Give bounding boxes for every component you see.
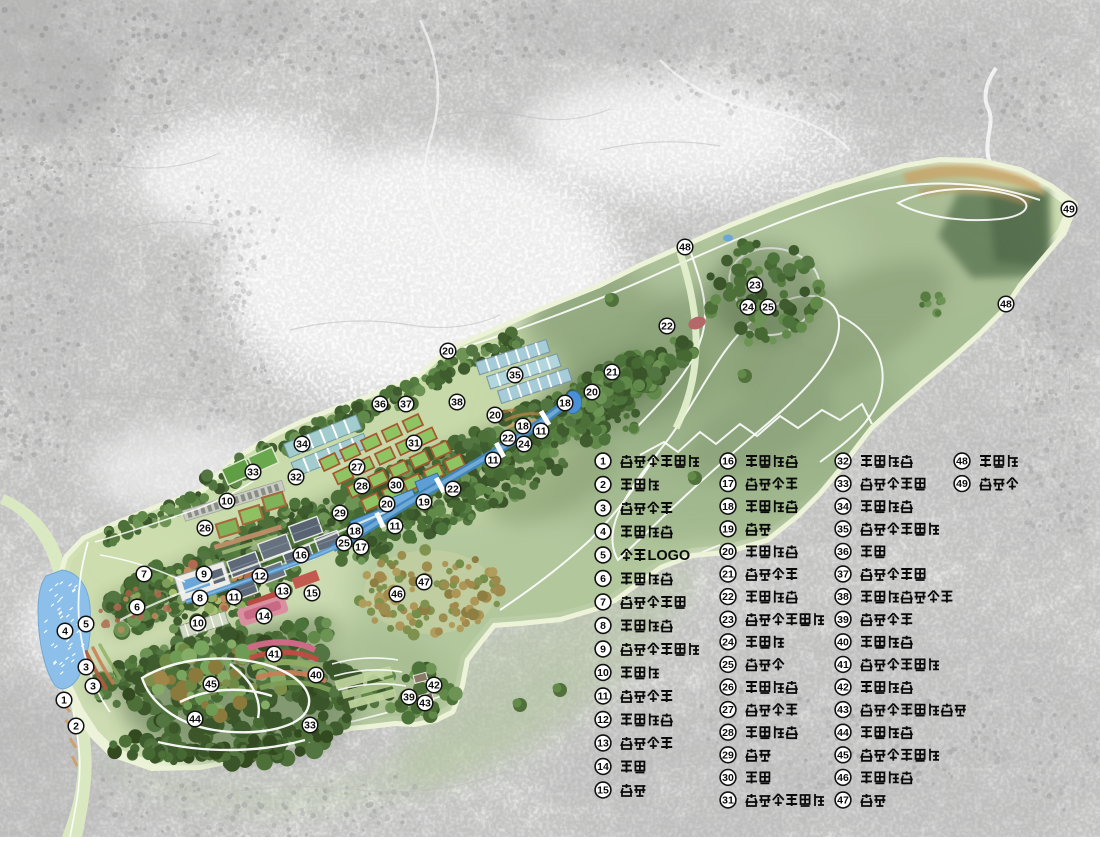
svg-text:34: 34: [296, 439, 308, 451]
svg-text:13: 13: [597, 738, 609, 750]
svg-text:22: 22: [502, 433, 514, 445]
svg-text:34: 34: [837, 501, 849, 513]
svg-text:2: 2: [600, 479, 606, 491]
svg-text:48: 48: [679, 242, 691, 254]
svg-text:32: 32: [837, 456, 849, 468]
svg-text:11: 11: [389, 521, 400, 533]
svg-text:8: 8: [600, 620, 606, 632]
svg-text:38: 38: [451, 397, 463, 409]
svg-text:19: 19: [722, 523, 734, 535]
svg-text:19: 19: [418, 497, 430, 509]
svg-text:15: 15: [597, 785, 609, 797]
svg-text:36: 36: [837, 546, 849, 558]
svg-text:11: 11: [487, 455, 498, 467]
svg-text:18: 18: [722, 501, 734, 513]
svg-text:1: 1: [61, 695, 67, 707]
svg-text:26: 26: [199, 523, 211, 535]
svg-text:40: 40: [837, 636, 849, 648]
svg-text:20: 20: [489, 410, 501, 422]
svg-text:48: 48: [956, 456, 968, 468]
svg-text:30: 30: [722, 772, 734, 784]
svg-text:42: 42: [428, 680, 440, 692]
svg-text:23: 23: [722, 614, 734, 626]
svg-text:49: 49: [956, 478, 968, 490]
svg-text:9: 9: [600, 644, 606, 656]
svg-text:12: 12: [597, 714, 609, 726]
svg-text:20: 20: [722, 546, 734, 558]
svg-text:42: 42: [837, 682, 849, 694]
svg-text:33: 33: [837, 478, 849, 490]
svg-text:14: 14: [258, 611, 270, 623]
svg-text:LOGO: LOGO: [648, 548, 691, 564]
svg-text:15: 15: [306, 588, 318, 600]
svg-text:21: 21: [722, 569, 734, 581]
svg-text:25: 25: [762, 302, 774, 314]
svg-text:5: 5: [83, 619, 89, 631]
svg-text:27: 27: [351, 462, 363, 474]
svg-text:20: 20: [586, 387, 598, 399]
svg-text:35: 35: [837, 523, 849, 535]
svg-text:26: 26: [722, 682, 734, 694]
svg-text:22: 22: [661, 321, 673, 333]
svg-text:29: 29: [722, 749, 734, 761]
svg-text:45: 45: [205, 679, 217, 691]
svg-text:24: 24: [518, 439, 530, 451]
svg-text:6: 6: [600, 573, 606, 585]
svg-text:48: 48: [1000, 299, 1012, 311]
svg-text:37: 37: [400, 399, 412, 411]
svg-text:36: 36: [374, 399, 386, 411]
svg-text:10: 10: [597, 667, 609, 679]
svg-text:14: 14: [597, 761, 609, 773]
svg-text:17: 17: [722, 478, 734, 490]
svg-text:11: 11: [535, 426, 546, 438]
svg-text:1: 1: [600, 456, 606, 468]
svg-text:47: 47: [418, 577, 430, 589]
svg-text:41: 41: [268, 649, 280, 661]
svg-text:20: 20: [381, 499, 393, 511]
svg-text:6: 6: [134, 602, 140, 614]
svg-text:13: 13: [277, 586, 289, 598]
svg-text:12: 12: [254, 571, 266, 583]
svg-text:22: 22: [722, 591, 734, 603]
svg-text:47: 47: [837, 795, 849, 807]
svg-text:24: 24: [742, 302, 754, 314]
svg-text:29: 29: [334, 508, 346, 520]
svg-text:38: 38: [837, 591, 849, 603]
svg-text:22: 22: [447, 484, 459, 496]
svg-text:21: 21: [606, 367, 618, 379]
svg-text:28: 28: [722, 727, 734, 739]
svg-text:17: 17: [355, 542, 367, 554]
svg-text:27: 27: [722, 704, 734, 716]
svg-text:5: 5: [600, 550, 606, 562]
svg-text:31: 31: [722, 795, 734, 807]
svg-text:43: 43: [837, 704, 849, 716]
svg-text:4: 4: [600, 526, 606, 538]
svg-text:7: 7: [141, 569, 147, 581]
svg-text:2: 2: [73, 721, 79, 733]
svg-text:25: 25: [722, 659, 734, 671]
svg-text:18: 18: [349, 526, 361, 538]
svg-text:16: 16: [722, 456, 734, 468]
svg-text:43: 43: [419, 698, 431, 710]
svg-text:31: 31: [408, 438, 420, 450]
svg-text:11: 11: [228, 592, 239, 604]
svg-text:4: 4: [62, 626, 68, 638]
svg-text:30: 30: [390, 480, 402, 492]
svg-text:3: 3: [90, 681, 96, 693]
svg-text:44: 44: [189, 714, 201, 726]
svg-text:3: 3: [83, 662, 89, 674]
svg-text:39: 39: [403, 692, 415, 704]
svg-text:46: 46: [391, 589, 403, 601]
svg-text:20: 20: [442, 346, 454, 358]
svg-text:45: 45: [837, 749, 849, 761]
svg-text:3: 3: [600, 503, 606, 515]
svg-text:49: 49: [1063, 204, 1075, 216]
svg-text:37: 37: [837, 569, 849, 581]
svg-text:24: 24: [722, 636, 734, 648]
svg-text:18: 18: [517, 421, 529, 433]
svg-text:33: 33: [247, 467, 259, 479]
svg-text:44: 44: [837, 727, 849, 739]
svg-text:10: 10: [221, 496, 233, 508]
svg-text:41: 41: [837, 659, 849, 671]
svg-text:40: 40: [310, 670, 322, 682]
svg-text:39: 39: [837, 614, 849, 626]
svg-text:35: 35: [509, 370, 521, 382]
svg-text:28: 28: [356, 481, 368, 493]
svg-text:11: 11: [597, 691, 608, 703]
svg-text:9: 9: [201, 569, 207, 581]
svg-text:10: 10: [192, 618, 204, 630]
svg-text:8: 8: [197, 593, 203, 605]
svg-text:25: 25: [338, 538, 350, 550]
svg-text:7: 7: [600, 597, 606, 609]
svg-text:46: 46: [837, 772, 849, 784]
svg-text:23: 23: [749, 280, 761, 292]
svg-text:33: 33: [304, 720, 316, 732]
svg-text:16: 16: [295, 550, 307, 562]
svg-text:32: 32: [290, 472, 302, 484]
svg-text:18: 18: [559, 398, 571, 410]
